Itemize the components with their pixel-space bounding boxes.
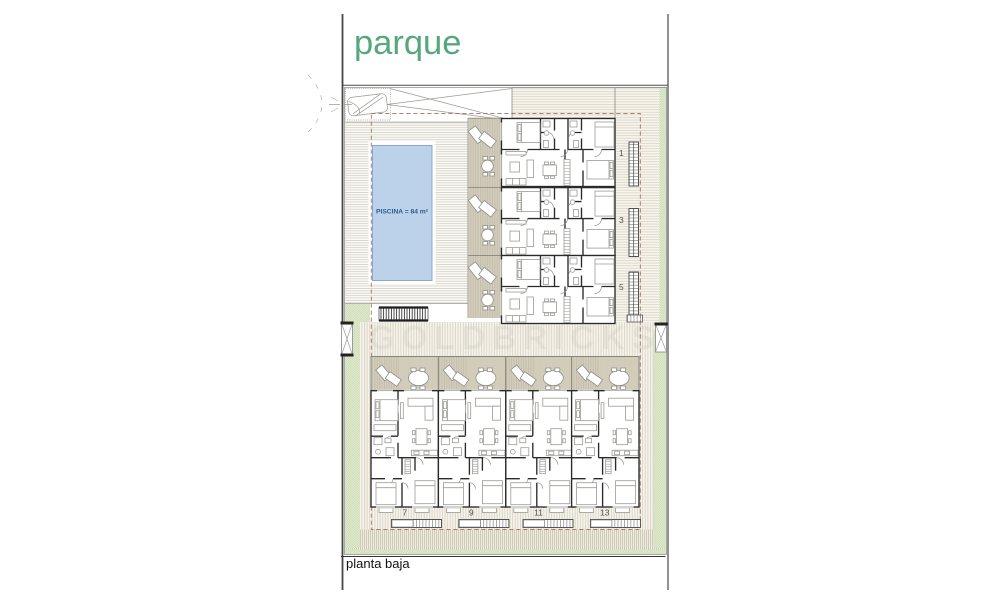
svg-text:11: 11 bbox=[534, 508, 543, 518]
svg-text:GOLDBRICKS: GOLDBRICKS bbox=[369, 319, 661, 356]
svg-text:planta baja: planta baja bbox=[346, 556, 410, 571]
svg-text:3: 3 bbox=[619, 215, 624, 225]
svg-text:PISCINA = 84 m²: PISCINA = 84 m² bbox=[376, 209, 429, 216]
svg-text:13: 13 bbox=[600, 508, 610, 518]
svg-text:parque: parque bbox=[354, 24, 461, 62]
svg-text:5: 5 bbox=[619, 282, 624, 292]
svg-text:1: 1 bbox=[619, 148, 624, 158]
svg-text:7: 7 bbox=[402, 508, 407, 518]
svg-text:9: 9 bbox=[469, 508, 474, 518]
